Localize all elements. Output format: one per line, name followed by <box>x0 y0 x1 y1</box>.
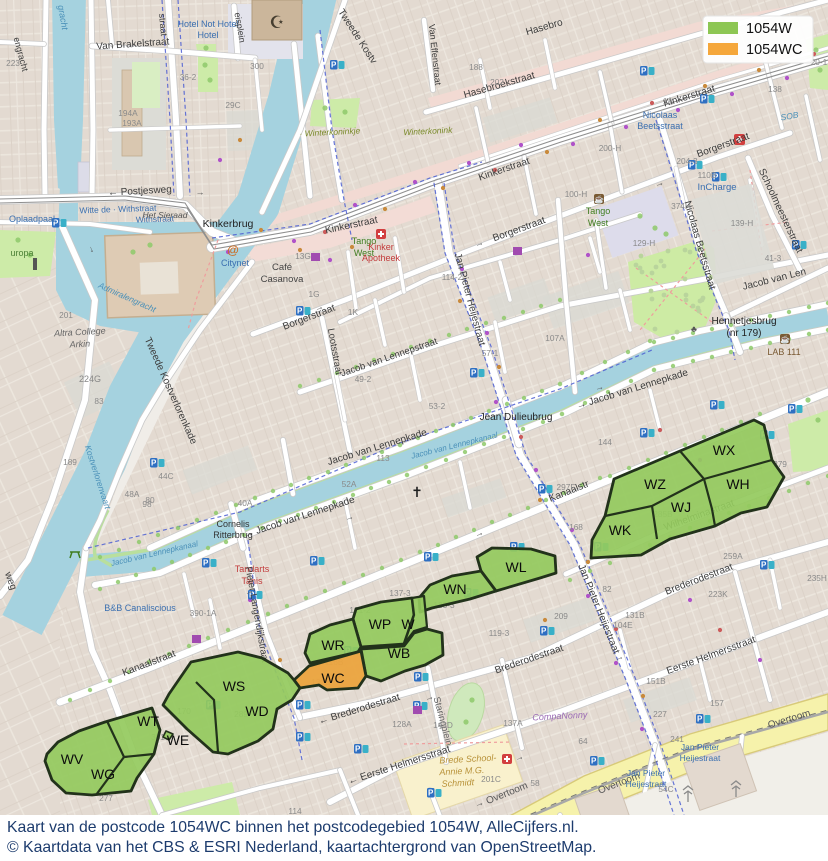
svg-text:P: P <box>331 61 337 70</box>
svg-text:WG: WG <box>91 766 115 782</box>
svg-text:P: P <box>539 485 545 494</box>
svg-text:WC: WC <box>321 670 344 686</box>
svg-text:uropa: uropa <box>10 248 33 258</box>
svg-text:1G: 1G <box>308 289 319 299</box>
svg-text:100-H: 100-H <box>565 189 588 199</box>
svg-text:13G: 13G <box>295 251 311 261</box>
svg-text:138: 138 <box>768 84 782 94</box>
svg-text:40A: 40A <box>238 498 253 508</box>
svg-text:WN: WN <box>443 581 466 597</box>
svg-text:36-2: 36-2 <box>180 72 197 82</box>
svg-text:Schmidt: Schmidt <box>441 777 474 789</box>
svg-text:223: 223 <box>6 58 20 68</box>
svg-text:137A: 137A <box>503 718 523 728</box>
svg-text:WV: WV <box>61 751 84 767</box>
svg-text:64: 64 <box>578 736 588 746</box>
svg-text:P: P <box>297 733 303 742</box>
svg-text:300: 300 <box>250 61 264 71</box>
svg-text:Oplaadpaal: Oplaadpaal <box>9 214 55 224</box>
svg-text:Hennetjesbrug: Hennetjesbrug <box>711 316 776 327</box>
svg-text:✝: ✝ <box>411 484 423 500</box>
svg-text:P: P <box>711 401 717 410</box>
svg-text:157: 157 <box>710 698 724 708</box>
svg-text:202: 202 <box>490 77 504 87</box>
svg-text:P: P <box>641 67 647 76</box>
svg-text:P: P <box>151 459 157 468</box>
svg-text:W: W <box>401 616 415 632</box>
svg-text:200-H: 200-H <box>599 143 622 153</box>
svg-text:114: 114 <box>288 806 302 816</box>
svg-text:WT: WT <box>137 713 159 729</box>
svg-text:119-3: 119-3 <box>489 628 510 638</box>
svg-text:WE: WE <box>167 732 190 748</box>
svg-text:241: 241 <box>670 734 684 744</box>
svg-text:Arkin: Arkin <box>68 338 90 349</box>
svg-text:Jan Pieter: Jan Pieter <box>627 768 665 778</box>
svg-text:52A: 52A <box>342 479 357 489</box>
svg-text:P: P <box>203 559 209 568</box>
svg-text:WX: WX <box>713 442 736 458</box>
svg-text:227: 227 <box>653 709 667 719</box>
svg-text:374H: 374H <box>671 201 691 211</box>
svg-text:Cornelis: Cornelis <box>216 519 250 529</box>
svg-text:53-2: 53-2 <box>429 401 446 411</box>
svg-text:201: 201 <box>59 310 73 320</box>
svg-text:114-2: 114-2 <box>442 272 463 282</box>
svg-text:1A: 1A <box>663 96 674 106</box>
svg-text:P: P <box>471 369 477 378</box>
svg-text:82: 82 <box>602 584 612 594</box>
svg-text:131B: 131B <box>625 610 645 620</box>
svg-text:139-H: 139-H <box>731 218 754 228</box>
svg-text:P: P <box>428 789 434 798</box>
svg-text:Nicolaas: Nicolaas <box>643 110 678 120</box>
svg-text:WB: WB <box>388 645 411 661</box>
svg-text:→: → <box>196 187 205 197</box>
svg-text:390-1A: 390-1A <box>190 608 217 618</box>
svg-text:151B: 151B <box>646 676 666 686</box>
svg-text:235H: 235H <box>807 573 827 583</box>
svg-text:128A: 128A <box>392 719 412 729</box>
svg-text:P: P <box>425 553 431 562</box>
svg-text:189: 189 <box>63 457 77 467</box>
svg-text:P: P <box>789 405 795 414</box>
svg-text:P: P <box>297 701 303 710</box>
svg-text:☕: ☕ <box>594 194 604 204</box>
svg-text:WL: WL <box>506 559 527 575</box>
svg-text:Beetsstraat: Beetsstraat <box>637 121 683 131</box>
svg-text:P: P <box>541 627 547 636</box>
svg-text:Jan Pieter: Jan Pieter <box>681 742 719 752</box>
svg-text:WH: WH <box>726 476 749 492</box>
svg-text:57-1: 57-1 <box>482 348 499 358</box>
svg-text:144: 144 <box>598 437 612 447</box>
svg-text:Casanova: Casanova <box>261 274 304 285</box>
svg-text:204-3: 204-3 <box>676 156 698 166</box>
svg-text:1054W: 1054W <box>746 21 792 37</box>
svg-text:Apotheek: Apotheek <box>362 253 401 263</box>
svg-text:194A: 194A <box>118 108 138 118</box>
svg-text:straat: straat <box>157 13 169 37</box>
svg-text:104E: 104E <box>613 620 633 630</box>
svg-text:@: @ <box>227 243 239 257</box>
svg-text:129-H: 129-H <box>633 238 656 248</box>
svg-text:Café: Café <box>272 262 292 273</box>
svg-text:54C: 54C <box>658 784 673 794</box>
svg-text:Kaart van de postcode 1054WC b: Kaart van de postcode 1054WC binnen het … <box>7 819 579 836</box>
svg-text:Kinker: Kinker <box>368 242 394 252</box>
svg-text:P: P <box>415 673 421 682</box>
svg-text:B&B Canaliscious: B&B Canaliscious <box>104 603 176 613</box>
svg-text:110B: 110B <box>698 170 717 180</box>
svg-text:WZ: WZ <box>644 476 666 492</box>
svg-text:193A: 193A <box>122 118 142 128</box>
svg-text:223K: 223K <box>708 589 728 599</box>
svg-text:259A: 259A <box>723 551 743 561</box>
svg-text:Citynet: Citynet <box>221 258 250 268</box>
svg-text:WP: WP <box>369 616 392 632</box>
svg-text:P: P <box>761 561 767 570</box>
svg-text:58: 58 <box>530 778 540 788</box>
svg-text:LAB 111: LAB 111 <box>767 347 800 357</box>
svg-text:48A: 48A <box>125 489 140 499</box>
svg-text:© Kaartdata van het CBS & ESRI: © Kaartdata van het CBS & ESRI Nederland… <box>7 839 596 856</box>
svg-text:(nr 179): (nr 179) <box>726 328 761 339</box>
svg-text:297F: 297F <box>557 482 576 492</box>
svg-text:Hotel Not Hotel: Hotel Not Hotel <box>177 19 238 29</box>
svg-text:P: P <box>311 557 317 566</box>
svg-text:InCharge: InCharge <box>697 182 736 193</box>
svg-text:WR: WR <box>321 637 344 653</box>
svg-text:29C: 29C <box>225 100 240 110</box>
svg-text:P: P <box>355 745 361 754</box>
svg-text:Kinkerbrug: Kinkerbrug <box>203 218 254 230</box>
svg-text:Heijestraat: Heijestraat <box>680 753 721 763</box>
svg-text:Hotel: Hotel <box>197 30 218 40</box>
svg-text:West: West <box>588 218 609 228</box>
svg-text:WD: WD <box>245 703 268 719</box>
svg-text:113: 113 <box>376 453 390 463</box>
svg-text:201C: 201C <box>481 774 501 784</box>
svg-text:WK: WK <box>609 522 632 538</box>
svg-text:44C: 44C <box>158 471 173 481</box>
svg-text:P: P <box>697 715 703 724</box>
svg-text:98: 98 <box>142 499 152 509</box>
svg-text:P: P <box>641 429 647 438</box>
svg-text:1054WC: 1054WC <box>746 42 802 58</box>
svg-text:P: P <box>591 757 597 766</box>
svg-text:1K: 1K <box>348 307 359 317</box>
svg-text:♣: ♣ <box>691 324 697 334</box>
svg-text:Tango: Tango <box>586 206 611 216</box>
svg-text:168: 168 <box>569 522 583 532</box>
svg-text:WS: WS <box>223 678 246 694</box>
svg-text:Het Sieraad: Het Sieraad <box>143 210 188 220</box>
svg-text:WJ: WJ <box>671 499 691 515</box>
svg-text:☪: ☪ <box>269 13 284 32</box>
svg-text:41-3: 41-3 <box>765 253 782 263</box>
svg-text:209: 209 <box>554 611 568 621</box>
svg-text:107A: 107A <box>545 333 565 343</box>
svg-text:☕: ☕ <box>780 334 790 344</box>
svg-text:83: 83 <box>94 396 104 406</box>
svg-text:188: 188 <box>469 62 483 72</box>
svg-text:49-2: 49-2 <box>355 374 372 384</box>
svg-text:224G: 224G <box>79 374 101 384</box>
svg-text:Jean Dulieubrug: Jean Dulieubrug <box>480 412 553 423</box>
svg-text:137-3: 137-3 <box>389 588 411 598</box>
svg-text:Ritterbrug: Ritterbrug <box>213 530 253 540</box>
svg-text:143D: 143D <box>433 720 453 730</box>
